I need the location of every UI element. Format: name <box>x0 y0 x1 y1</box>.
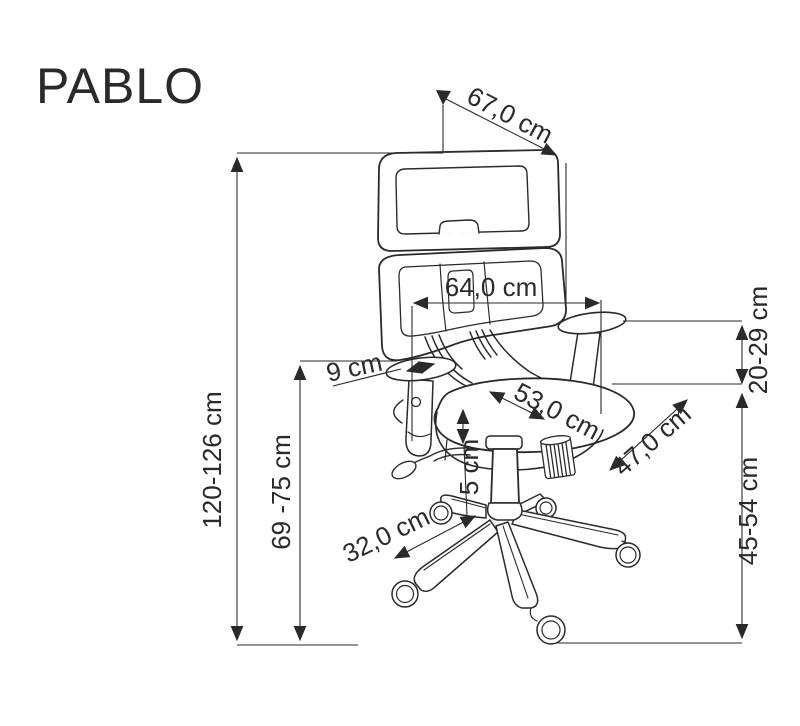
headrest <box>378 150 560 251</box>
dim-label-gas-lift: 5 cm <box>454 439 484 495</box>
dim-label-backrest-height: 69 -75 cm <box>266 434 296 550</box>
dim-label-armrest-pad: 9 cm <box>323 347 384 388</box>
base <box>392 494 640 644</box>
backrest <box>379 248 566 360</box>
dim-label-total-height: 120-126 cm <box>197 391 227 528</box>
product-title: PABLO <box>36 58 204 114</box>
dim-label-base-leg: 32,0 cm <box>338 501 434 569</box>
dim-label-armrest-height: 20-29 cm <box>743 286 773 394</box>
diagram-svg: PABLO 67,0 cm 64,0 cm 120-126 cm 69 -75 … <box>0 0 800 726</box>
gas-lift-column <box>486 436 522 503</box>
chair-dimension-diagram: PABLO 67,0 cm 64,0 cm 120-126 cm 69 -75 … <box>0 0 800 726</box>
dim-label-seat-height: 45-54 cm <box>733 457 763 565</box>
dim-label-backrest-width: 64,0 cm <box>445 272 538 302</box>
adjustment-knob <box>540 434 575 479</box>
